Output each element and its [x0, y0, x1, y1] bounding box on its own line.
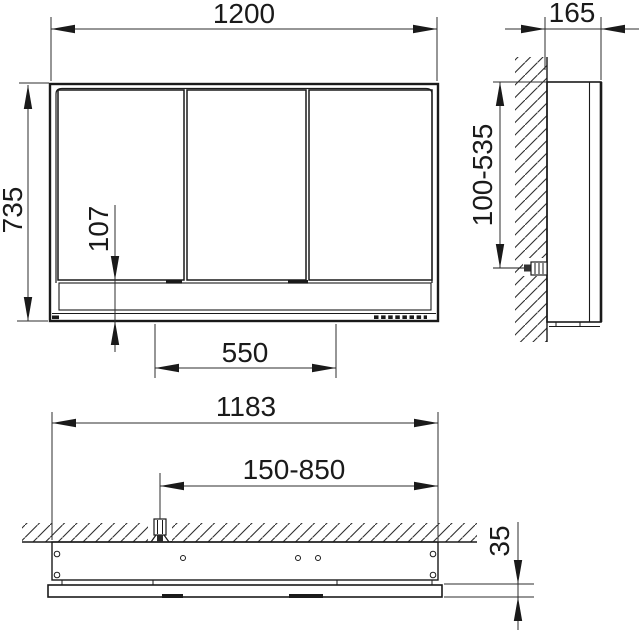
arrowhead-left-icon: [601, 25, 625, 33]
dim-label-side-depth: 165: [549, 0, 596, 28]
plan-view: [22, 516, 477, 598]
dim-front-height: 735: [0, 83, 49, 321]
arrowhead-right-icon: [413, 25, 437, 33]
mirror-door-right: [309, 90, 432, 280]
panel-tab: [289, 594, 323, 598]
screw-hole: [430, 551, 436, 557]
screw-hole: [181, 556, 186, 561]
arrowhead-left-icon: [160, 482, 184, 490]
dim-front-width: 1200: [51, 0, 437, 81]
dim-label-bottom-panel: 107: [83, 206, 114, 253]
dim-label-plan-range: 150-850: [243, 454, 346, 485]
arrowhead-up-icon: [514, 597, 522, 621]
cabinet-body-side: [547, 82, 601, 322]
arrowhead-down-icon: [514, 560, 522, 584]
dim-label-center-span: 550: [222, 337, 269, 368]
mirror-door-left: [58, 90, 184, 280]
arrowhead-right-icon: [414, 419, 438, 427]
mirror-panel-plan: [48, 585, 442, 597]
technical-drawing: 1200 735 107 550: [0, 0, 640, 636]
screw-hole: [54, 572, 60, 578]
mounting-bolt: [154, 519, 166, 535]
arrowhead-down-icon: [496, 244, 504, 268]
cable-stub: [524, 265, 531, 272]
mirror-door-middle: [187, 90, 306, 280]
wall-hatching: [515, 57, 547, 342]
arrowhead-up-icon: [111, 321, 119, 345]
arrowhead-up-icon: [24, 85, 32, 109]
dim-plan-connection-range: 150-850: [160, 454, 438, 519]
arrowhead-left-icon: [51, 25, 75, 33]
arrowhead-down-icon: [24, 297, 32, 321]
dim-label-front-width: 1200: [213, 0, 275, 29]
switch-mark: [52, 316, 59, 320]
dim-label-plan-width: 1183: [216, 391, 276, 422]
drawing-canvas: 1200 735 107 550: [0, 0, 640, 636]
dim-label-panel-thickness: 35: [484, 525, 515, 556]
arrowhead-right-icon: [414, 482, 438, 490]
dim-front-center-span: 550: [155, 324, 336, 378]
side-view: [493, 57, 601, 342]
arrowhead-right-icon: [521, 25, 545, 33]
arrowhead-up-icon: [496, 82, 504, 106]
dim-front-bottom-panel: 107: [83, 205, 119, 352]
cabinet-body-plan: [52, 542, 438, 580]
front-view: [50, 84, 438, 321]
cabinet-inner-frame: [56, 89, 432, 284]
arrowhead-left-icon: [155, 364, 179, 372]
cabinet-outline: [50, 84, 438, 321]
screw-hole: [316, 556, 321, 561]
panel-tab: [162, 594, 183, 598]
arrowhead-right-icon: [312, 364, 336, 372]
wall-hatching: [22, 523, 477, 542]
screw-hole: [430, 572, 436, 578]
dim-label-front-height: 735: [0, 187, 28, 234]
screw-hole: [296, 556, 301, 561]
dim-label-connection-range: 100-535: [467, 124, 498, 227]
arrowhead-down-icon: [111, 256, 119, 280]
bolt-base: [157, 535, 163, 542]
screw-hole: [54, 551, 60, 557]
arrowhead-left-icon: [52, 419, 76, 427]
